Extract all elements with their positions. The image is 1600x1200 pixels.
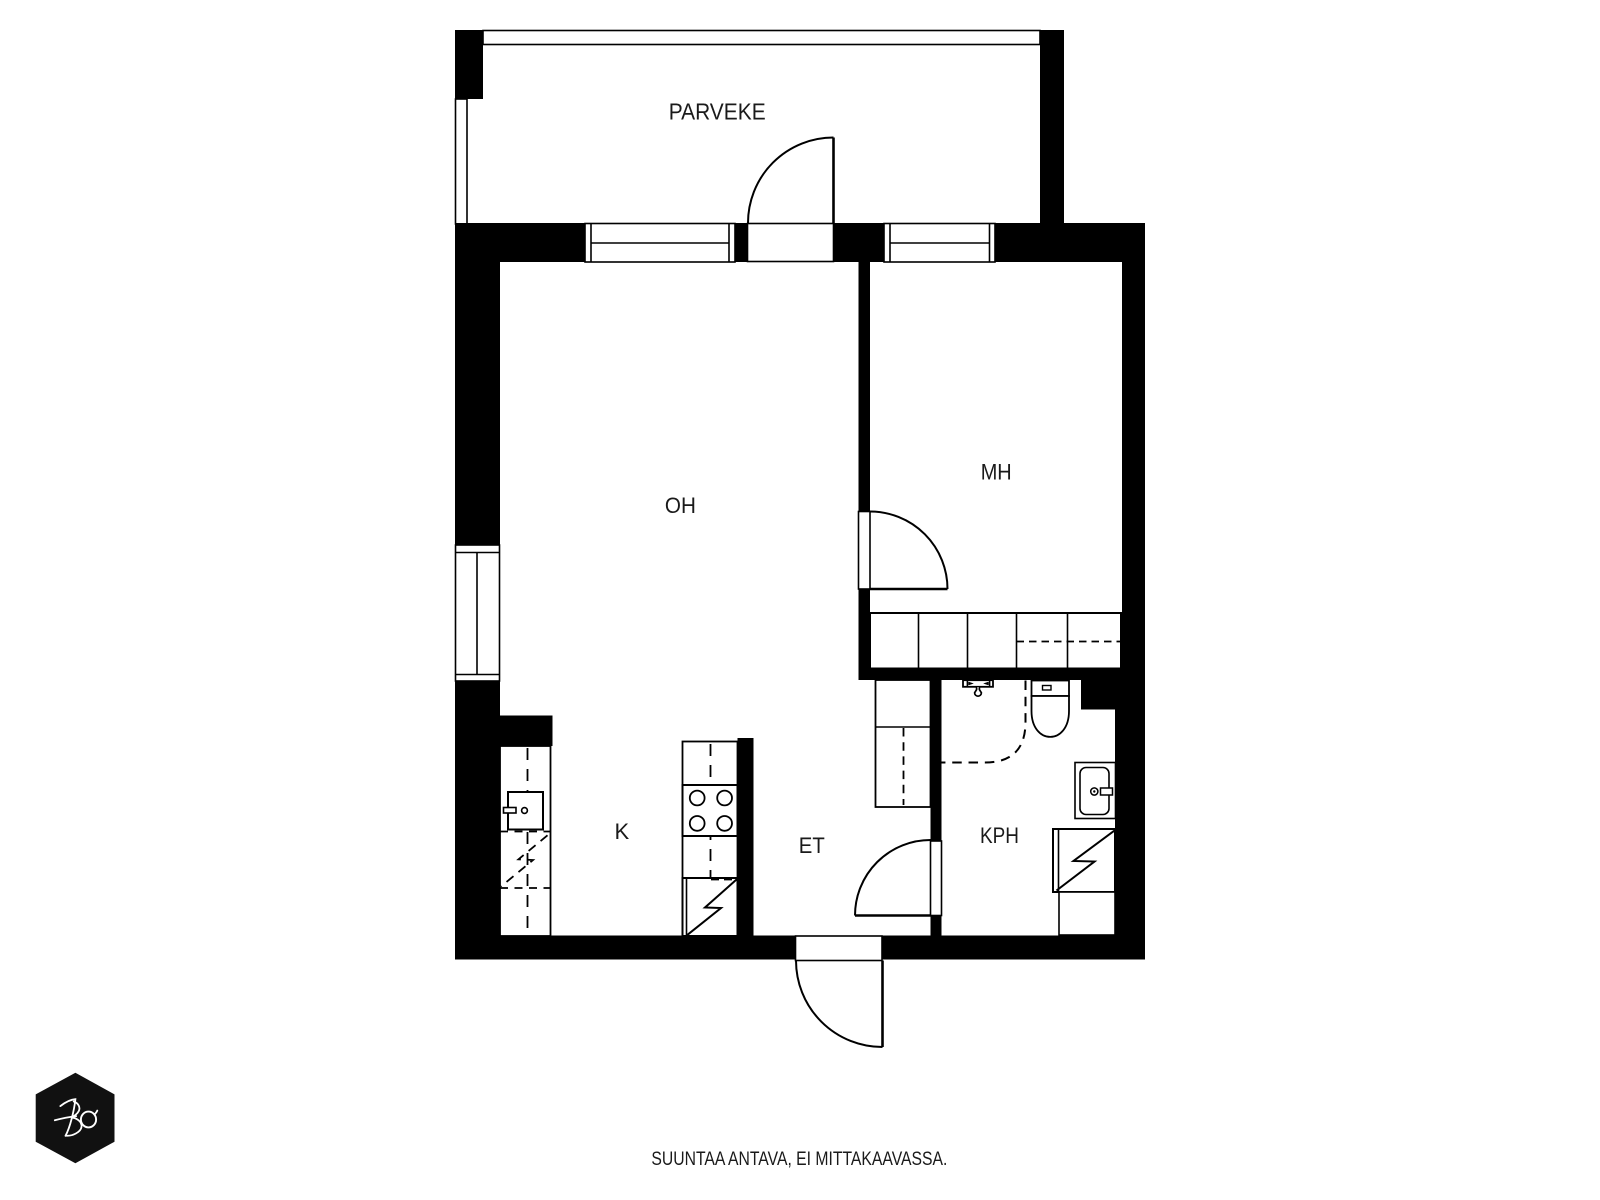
- svg-text:ET: ET: [799, 833, 825, 858]
- svg-text:MH: MH: [981, 460, 1012, 485]
- svg-text:SUUNTAA ANTAVA, EI MITTAKAAVAS: SUUNTAA ANTAVA, EI MITTAKAAVASSA.: [651, 1149, 947, 1170]
- svg-text:OH: OH: [665, 493, 696, 518]
- svg-text:PARVEKE: PARVEKE: [669, 98, 766, 124]
- svg-text:KPH: KPH: [980, 823, 1019, 848]
- svg-text:K: K: [614, 819, 629, 844]
